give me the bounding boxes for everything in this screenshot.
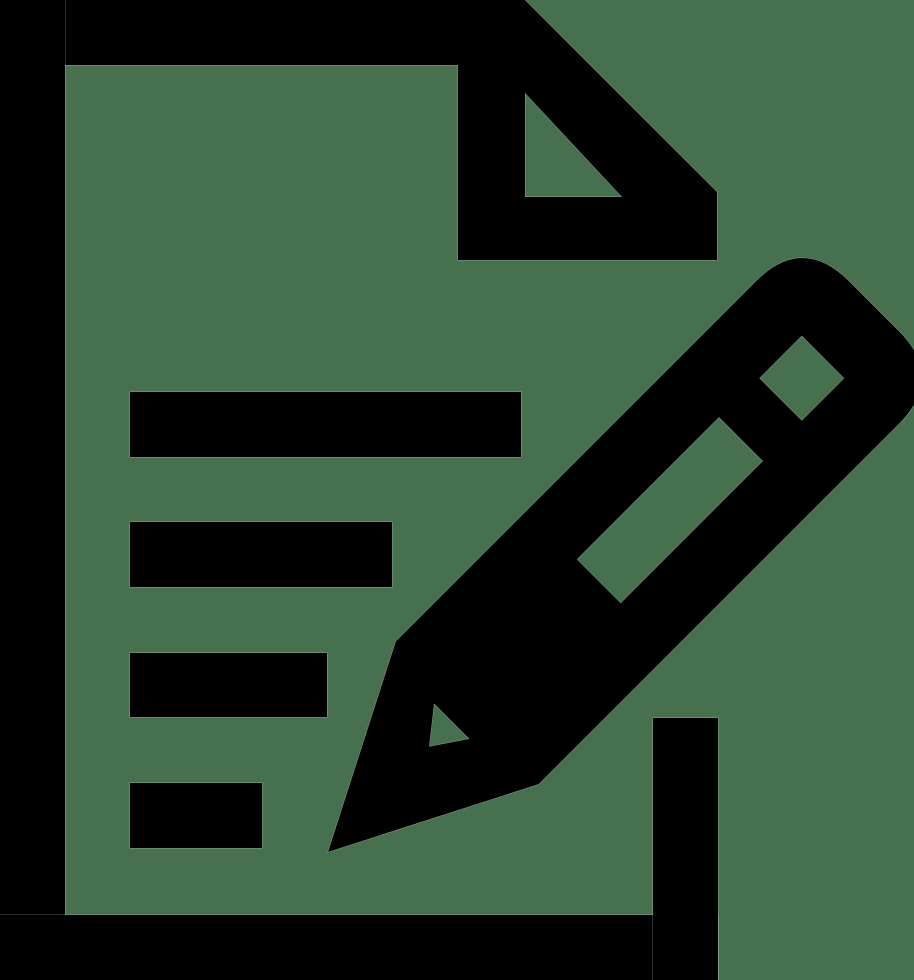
document-border-right [653,718,718,980]
text-line-1 [130,392,521,457]
document-edit-icon [0,0,914,980]
document-border-bottom [0,915,718,980]
icon-canvas [0,0,914,980]
text-line-3 [130,653,327,717]
text-line-4 [130,783,262,848]
text-line-2 [130,522,392,587]
document-border-left [0,0,65,980]
